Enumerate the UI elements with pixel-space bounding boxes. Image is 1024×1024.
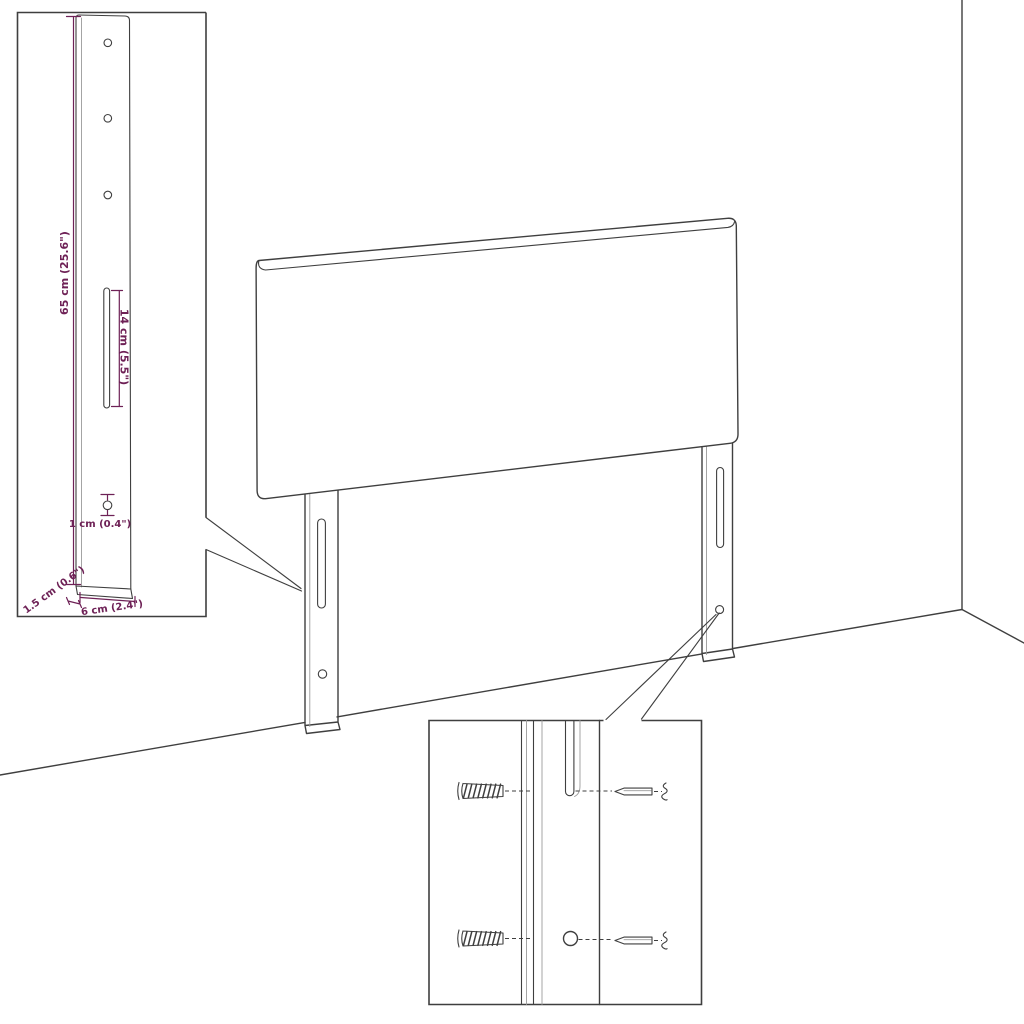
headboard-leg-left: [305, 488, 340, 734]
headboard-assembly-diagram: 65 cm (25.6") 14 cm (5.5") 1 cm (0.4") 1…: [0, 0, 1024, 1024]
product-diagram-canvas: 65 cm (25.6") 14 cm (5.5") 1 cm (0.4") 1…: [0, 0, 1024, 1024]
detail-inset-mounting: [429, 721, 702, 1005]
headboard-leg-right: [702, 441, 735, 662]
detail-inset-bracket: 65 cm (25.6") 14 cm (5.5") 1 cm (0.4") 1…: [18, 13, 207, 619]
floor-line-right: [962, 610, 1024, 644]
dimension-hole-label: 1 cm (0.4"): [69, 519, 131, 530]
leg-right-hole: [716, 606, 724, 614]
dimension-slot-label: 14 cm (5.5"): [117, 309, 130, 385]
magnifier-wedge-left: [206, 518, 302, 592]
leg-left-slot: [318, 519, 326, 608]
leg-left-hole: [318, 670, 326, 678]
headboard-panel: [256, 218, 738, 498]
headboard-panel-outline: [256, 218, 738, 498]
wedge-left-lines: [206, 518, 302, 592]
leg-left-outline: [305, 488, 340, 734]
dimension-height-label: 65 cm (25.6"): [58, 231, 71, 315]
leg-right-slot: [717, 468, 724, 548]
